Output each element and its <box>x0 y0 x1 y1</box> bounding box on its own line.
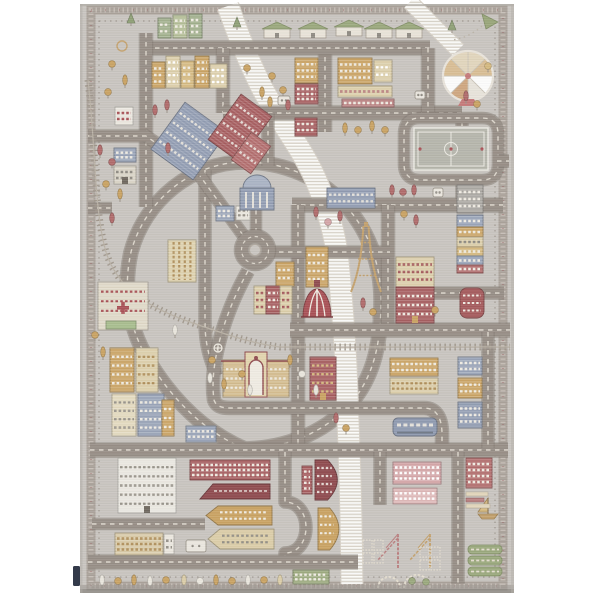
rug-top-edge <box>80 4 514 6</box>
rug-right-edge <box>511 4 514 593</box>
play-rug-city-map <box>0 0 600 600</box>
rug-left-edge <box>80 4 83 593</box>
weave-overlay <box>80 4 514 593</box>
care-tag <box>73 566 80 586</box>
rug-product-photo <box>0 0 600 600</box>
rug-bottom-shadow <box>80 589 514 593</box>
rug-bottom-fold <box>80 585 514 589</box>
